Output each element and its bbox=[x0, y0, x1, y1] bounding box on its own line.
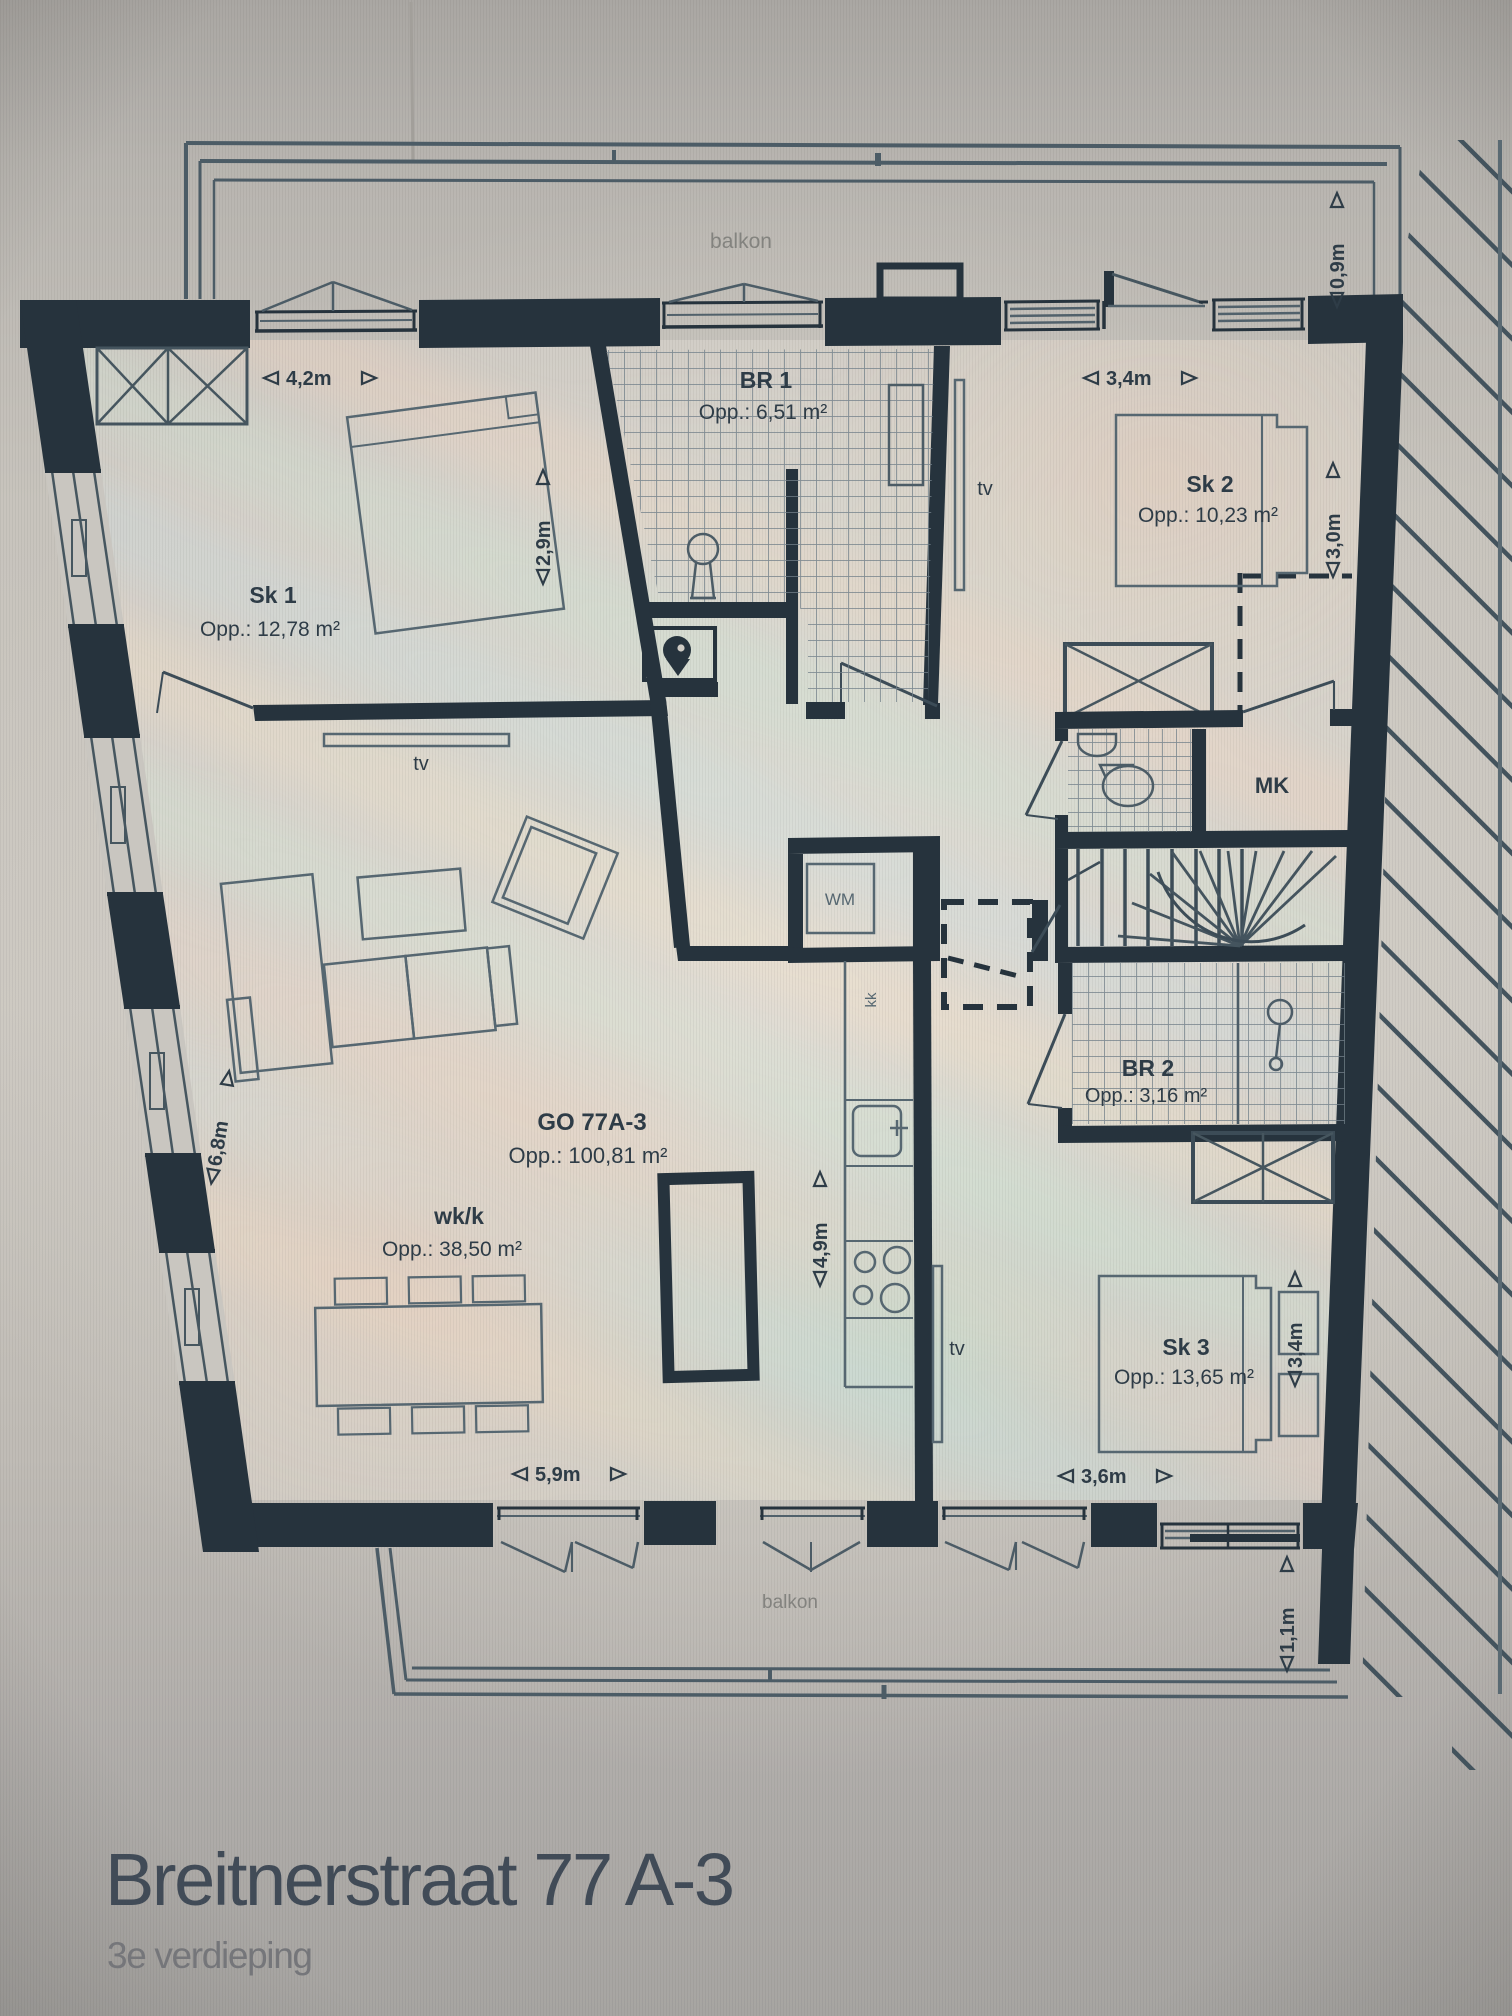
svg-text:Sk 3: Sk 3 bbox=[1162, 1334, 1209, 1360]
svg-text:balkon: balkon bbox=[762, 1592, 818, 1613]
svg-text:1,1m: 1,1m bbox=[1277, 1607, 1299, 1653]
svg-text:Opp.: 13,65 m²: Opp.: 13,65 m² bbox=[1114, 1366, 1254, 1389]
svg-text:Sk 1: Sk 1 bbox=[249, 582, 297, 608]
svg-text:tv: tv bbox=[977, 478, 993, 500]
svg-text:4,9m: 4,9m bbox=[810, 1222, 832, 1268]
svg-text:Opp.: 100,81 m²: Opp.: 100,81 m² bbox=[509, 1143, 668, 1168]
svg-text:0,9m: 0,9m bbox=[1327, 243, 1349, 289]
svg-text:Opp.: 10,23 m²: Opp.: 10,23 m² bbox=[1138, 504, 1278, 527]
svg-text:BR 1: BR 1 bbox=[740, 367, 793, 393]
svg-text:Breitnerstraat 77 A-3: Breitnerstraat 77 A-3 bbox=[105, 1838, 735, 1921]
svg-text:Opp.: 3,16 m²: Opp.: 3,16 m² bbox=[1085, 1085, 1208, 1107]
svg-text:3,0m: 3,0m bbox=[1323, 513, 1345, 559]
svg-text:tv: tv bbox=[413, 753, 429, 775]
svg-text:Sk 2: Sk 2 bbox=[1186, 471, 1233, 497]
svg-text:Opp.: 38,50 m²: Opp.: 38,50 m² bbox=[382, 1238, 522, 1261]
svg-text:3,4m: 3,4m bbox=[1106, 368, 1152, 390]
svg-text:BR 2: BR 2 bbox=[1122, 1055, 1174, 1081]
svg-text:3,6m: 3,6m bbox=[1081, 1466, 1127, 1488]
svg-text:Opp.: 6,51 m²: Opp.: 6,51 m² bbox=[699, 401, 827, 424]
svg-text:3e verdieping: 3e verdieping bbox=[107, 1935, 313, 1976]
svg-text:3,4m: 3,4m bbox=[1285, 1322, 1307, 1368]
svg-text:2,9m: 2,9m bbox=[533, 520, 555, 566]
svg-text:Opp.: 12,78 m²: Opp.: 12,78 m² bbox=[200, 618, 340, 641]
svg-text:balkon: balkon bbox=[710, 230, 772, 253]
svg-text:WM: WM bbox=[825, 890, 855, 909]
svg-text:kk: kk bbox=[863, 992, 880, 1008]
svg-text:5,9m: 5,9m bbox=[535, 1464, 581, 1486]
svg-text:GO 77A-3: GO 77A-3 bbox=[537, 1109, 646, 1136]
svg-text:tv: tv bbox=[949, 1338, 965, 1360]
svg-text:4,2m: 4,2m bbox=[286, 368, 332, 390]
svg-text:wk/k: wk/k bbox=[433, 1203, 484, 1229]
svg-text:MK: MK bbox=[1255, 773, 1289, 798]
